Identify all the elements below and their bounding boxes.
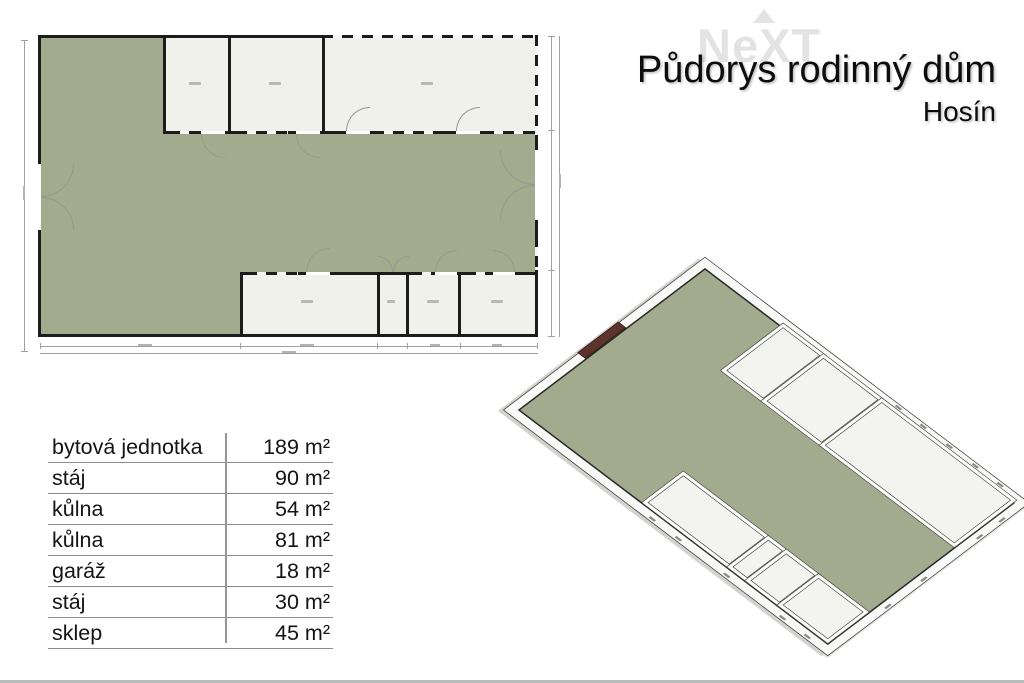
door-arc bbox=[41, 197, 74, 230]
dim-label-smudge bbox=[138, 344, 152, 346]
room-top-2 bbox=[228, 38, 325, 134]
area-value-cell: 90 m² bbox=[226, 463, 333, 493]
room-label-smudge bbox=[387, 300, 395, 303]
dim-label-smudge bbox=[559, 174, 561, 188]
door-arc bbox=[500, 150, 535, 185]
dim-label-smudge bbox=[300, 344, 314, 346]
room-label-cell: bytová jednotka bbox=[48, 432, 226, 462]
area-value-cell: 18 m² bbox=[226, 556, 333, 586]
dim-tick bbox=[21, 351, 28, 352]
dim-label-smudge bbox=[282, 351, 296, 353]
area-value-cell: 54 m² bbox=[226, 494, 333, 524]
room-label-smudge bbox=[189, 82, 201, 85]
door-arc bbox=[393, 256, 409, 272]
door-arc bbox=[306, 248, 330, 272]
dim-tick bbox=[548, 130, 555, 131]
area-value-cell: 30 m² bbox=[226, 587, 333, 617]
room-label-smudge bbox=[301, 300, 313, 303]
window-wall bbox=[465, 272, 491, 275]
dim-tick bbox=[460, 343, 461, 349]
door-arc bbox=[493, 250, 515, 272]
table-row: bytová jednotka 189 m² bbox=[48, 432, 333, 463]
dim-tick bbox=[377, 343, 378, 349]
window-wall bbox=[236, 131, 288, 134]
area-value-cell: 189 m² bbox=[226, 432, 333, 462]
dimension-line-right-1 bbox=[551, 36, 552, 337]
room-label-cell: garáž bbox=[48, 556, 226, 586]
floorplan-2d bbox=[38, 35, 538, 337]
area-value-cell: 45 m² bbox=[226, 618, 333, 648]
table-row: sklep 45 m² bbox=[48, 618, 333, 649]
area-table: bytová jednotka 189 m² stáj 90 m² kůlna … bbox=[48, 432, 333, 649]
table-row: garáž 18 m² bbox=[48, 556, 333, 587]
room-bottom-2 bbox=[377, 272, 409, 334]
flyer-page: NeXT Půdorys rodinný dům Hosín bytová je… bbox=[0, 0, 1024, 683]
dim-tick bbox=[548, 36, 555, 37]
room-label-cell: stáj bbox=[48, 463, 226, 493]
door-opening bbox=[456, 131, 480, 134]
dim-label-smudge bbox=[23, 186, 25, 200]
floorplan-3d bbox=[518, 268, 1015, 645]
table-row: kůlna 81 m² bbox=[48, 525, 333, 556]
door-opening bbox=[306, 272, 330, 275]
door-opening bbox=[346, 131, 370, 134]
door-opening bbox=[493, 272, 515, 275]
room-bottom-1 bbox=[240, 272, 380, 334]
room-label-cell: kůlna bbox=[48, 525, 226, 555]
room-label-smudge bbox=[491, 300, 503, 303]
column-divider bbox=[225, 433, 227, 643]
window-wall bbox=[246, 272, 298, 275]
dim-label-smudge bbox=[430, 344, 440, 346]
room-label-smudge bbox=[269, 82, 281, 85]
door-opening bbox=[435, 272, 457, 275]
room-label-smudge bbox=[427, 300, 439, 303]
door-arc bbox=[201, 134, 225, 158]
door-arc bbox=[435, 250, 457, 272]
door-arc bbox=[377, 256, 393, 272]
room-label-cell: sklep bbox=[48, 618, 226, 648]
door-arc bbox=[41, 164, 74, 197]
dim-tick bbox=[548, 270, 555, 271]
window-wall bbox=[483, 131, 525, 134]
room-label-cell: kůlna bbox=[48, 494, 226, 524]
room-bottom-3 bbox=[406, 272, 461, 334]
dim-tick bbox=[21, 40, 28, 41]
table-row: stáj 90 m² bbox=[48, 463, 333, 494]
dim-tick bbox=[40, 343, 41, 349]
dim-label-smudge bbox=[492, 344, 502, 346]
window-wall bbox=[535, 35, 538, 135]
dimension-line-bottom-1 bbox=[40, 346, 538, 347]
dim-tick bbox=[240, 343, 241, 349]
dim-tick bbox=[407, 343, 408, 349]
page-title: Půdorys rodinný dům bbox=[637, 50, 996, 92]
dimension-line-bottom-2 bbox=[40, 353, 538, 354]
window-wall bbox=[535, 236, 538, 270]
window-wall bbox=[411, 272, 433, 275]
window-wall bbox=[322, 35, 538, 38]
room-top-1 bbox=[163, 38, 231, 134]
area-value-cell: 81 m² bbox=[226, 525, 333, 555]
room-label-smudge bbox=[421, 82, 433, 85]
dim-tick bbox=[537, 343, 538, 349]
table-row: kůlna 54 m² bbox=[48, 494, 333, 525]
page-subtitle: Hosín bbox=[923, 96, 996, 128]
door-arc bbox=[500, 185, 535, 220]
window-wall bbox=[169, 131, 199, 134]
watermark-caret-icon bbox=[753, 9, 775, 23]
door-arc bbox=[296, 134, 320, 158]
table-row: stáj 30 m² bbox=[48, 587, 333, 618]
door-opening bbox=[535, 150, 538, 220]
window-wall bbox=[373, 131, 439, 134]
room-label-cell: stáj bbox=[48, 587, 226, 617]
dim-tick bbox=[548, 336, 555, 337]
room-bottom-4 bbox=[458, 272, 535, 334]
